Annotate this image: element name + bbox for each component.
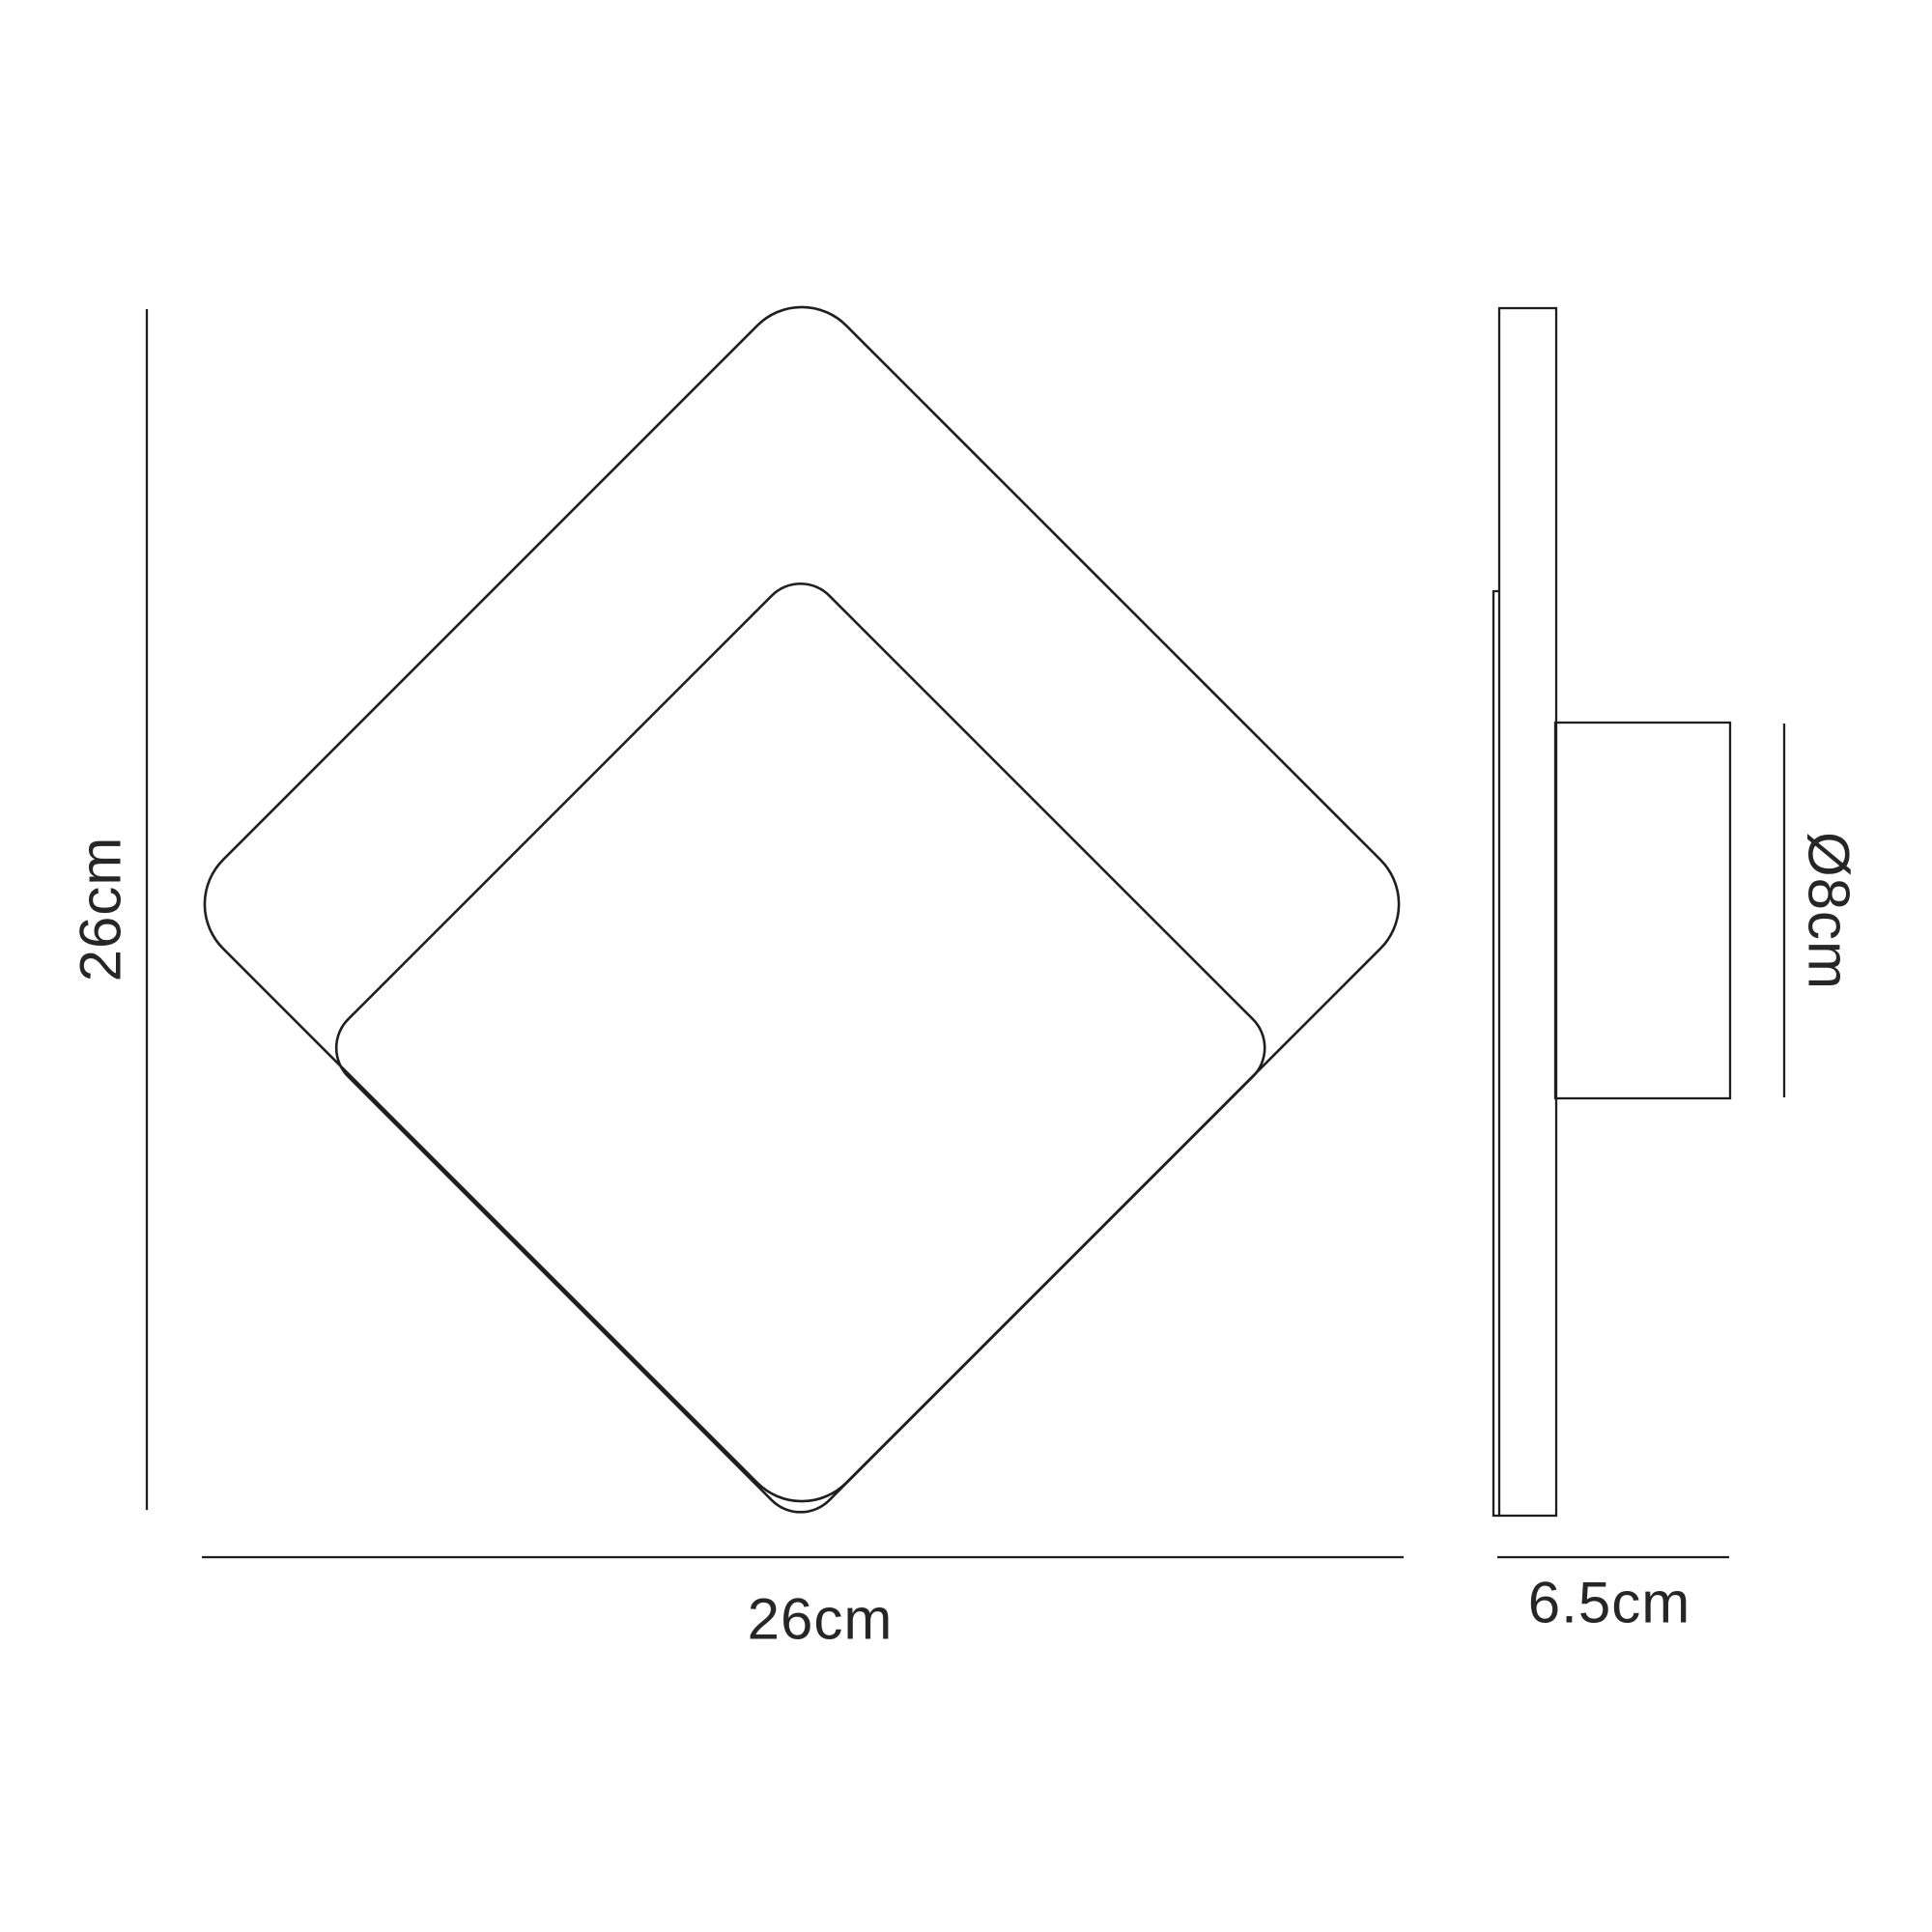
diagram-canvas: 26cm 26cm Ø8cm 6.5cm: [0, 0, 1932, 1932]
technical-drawing: 26cm 26cm Ø8cm 6.5cm: [0, 0, 1932, 1932]
side-profile-plate: [1499, 308, 1556, 1516]
width-dimension-label: 26cm: [748, 1587, 894, 1652]
inner-square-outline: [320, 567, 1282, 1529]
front-view: [179, 281, 1425, 1529]
driver-cylinder: [1555, 723, 1730, 1098]
side-view: [1493, 308, 1730, 1516]
diameter-dimension-label: Ø8cm: [1797, 832, 1861, 990]
depth-dimension-label: 6.5cm: [1528, 1571, 1690, 1635]
height-dimension-label: 26cm: [69, 837, 133, 982]
outer-square-outline: [179, 281, 1425, 1527]
